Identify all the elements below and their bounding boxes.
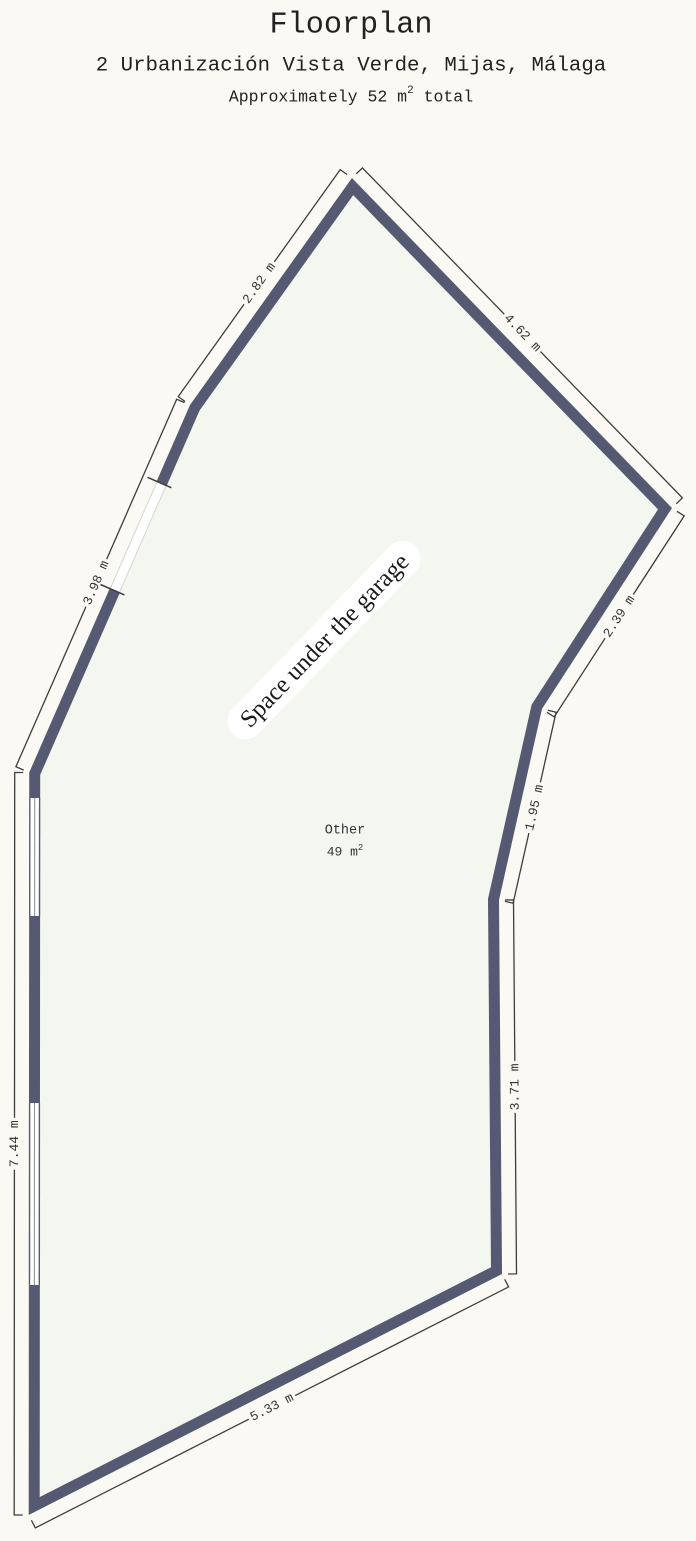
svg-text:2 Urbanización Vista Verde, Mi: 2 Urbanización Vista Verde, Mijas, Málag…	[96, 55, 607, 78]
svg-text:Other: Other	[325, 824, 366, 839]
svg-text:Approximately 52 m2 total: Approximately 52 m2 total	[229, 85, 473, 107]
svg-text:Floorplan: Floorplan	[269, 9, 432, 43]
svg-text:3.71 m: 3.71 m	[507, 1063, 522, 1110]
svg-text:7.44 m: 7.44 m	[7, 1120, 22, 1167]
svg-text:49 m2: 49 m2	[327, 843, 364, 860]
